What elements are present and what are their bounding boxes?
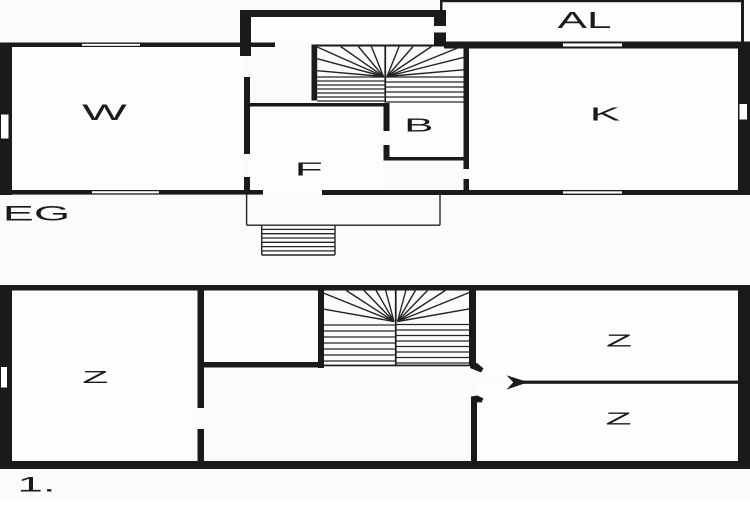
svg-text:EG: EG — [3, 201, 70, 225]
svg-text:Z: Z — [82, 368, 108, 387]
svg-text:W: W — [82, 100, 127, 124]
svg-text:1.: 1. — [17, 473, 55, 497]
svg-text:Z: Z — [606, 331, 632, 350]
svg-text:AL: AL — [558, 8, 612, 34]
svg-text:Z: Z — [605, 409, 631, 428]
svg-text:B: B — [404, 116, 433, 136]
svg-text:F: F — [295, 159, 323, 179]
svg-text:K: K — [590, 104, 621, 125]
